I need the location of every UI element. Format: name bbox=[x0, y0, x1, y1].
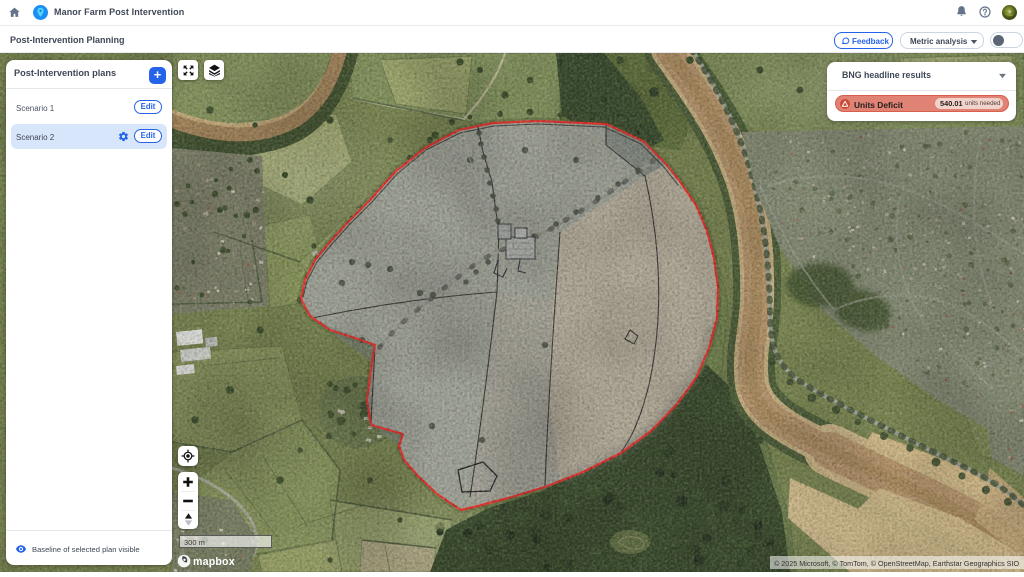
svg-text:mapbox: mapbox bbox=[193, 556, 235, 568]
